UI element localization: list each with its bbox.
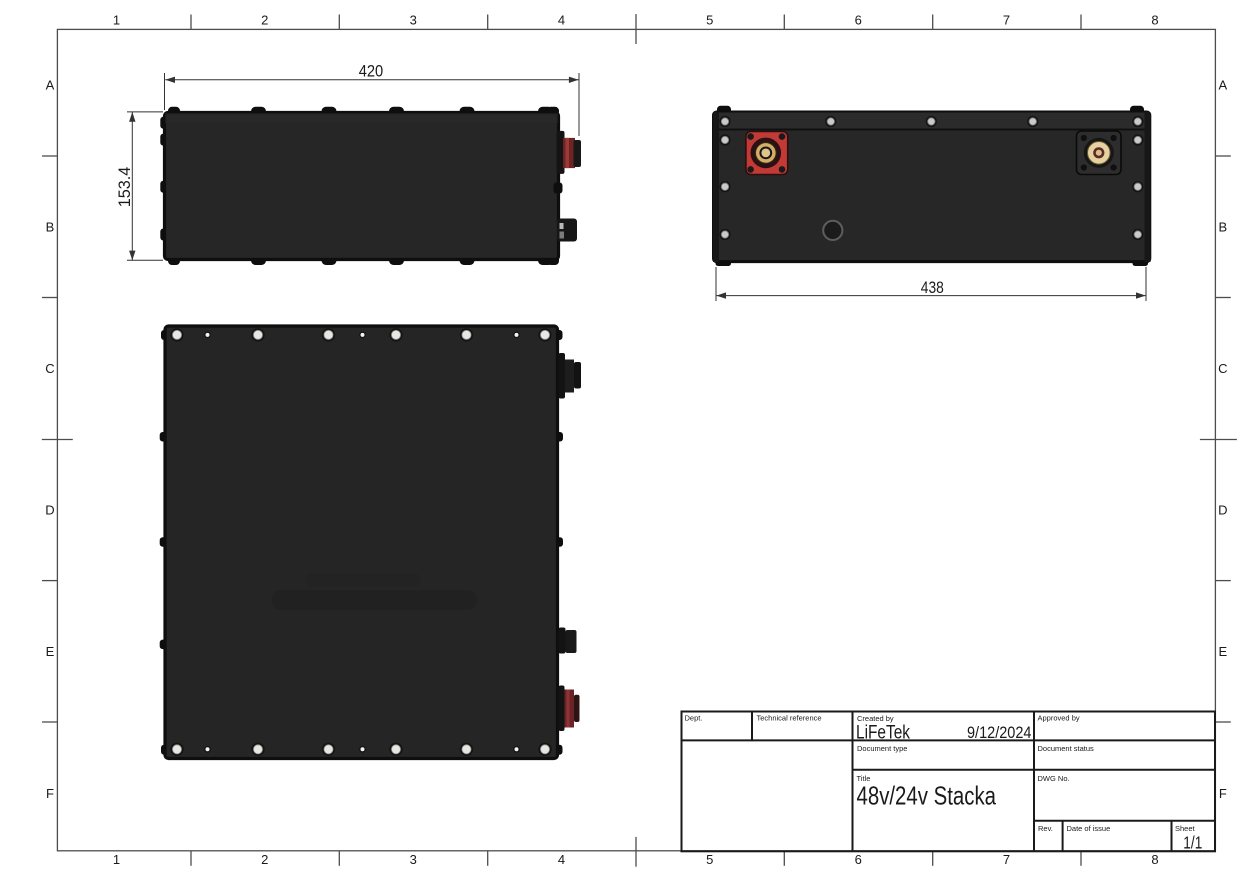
svg-text:1/1: 1/1 [1183,833,1202,853]
svg-text:8: 8 [1151,13,1158,28]
svg-text:7: 7 [1003,13,1010,28]
svg-text:6: 6 [855,13,862,28]
svg-text:E: E [1218,644,1227,659]
svg-text:A: A [46,78,55,93]
svg-text:4: 4 [558,13,565,28]
svg-text:B: B [1218,220,1227,235]
svg-text:D: D [1218,503,1227,518]
svg-text:5: 5 [706,852,713,867]
svg-text:D: D [45,503,54,518]
svg-text:2: 2 [261,852,268,867]
svg-text:Dept.: Dept. [685,714,703,723]
svg-text:48v/24v Stacka: 48v/24v Stacka [857,781,997,811]
svg-text:A: A [1218,78,1227,93]
svg-text:7: 7 [1003,852,1010,867]
svg-text:Rev.: Rev. [1038,824,1053,833]
svg-text:6: 6 [855,852,862,867]
svg-text:Document type: Document type [857,744,907,753]
svg-text:Document status: Document status [1038,744,1095,753]
svg-text:F: F [1219,786,1227,801]
svg-text:3: 3 [410,852,417,867]
svg-text:3: 3 [410,13,417,28]
svg-text:Technical reference: Technical reference [757,714,822,723]
svg-text:Date of issue: Date of issue [1067,824,1111,833]
svg-text:8: 8 [1151,852,1158,867]
svg-text:1: 1 [113,852,120,867]
svg-text:LiFeTek: LiFeTek [856,722,910,743]
svg-text:420: 420 [359,62,384,80]
svg-text:DWG No.: DWG No. [1038,774,1070,783]
svg-text:2: 2 [261,13,268,28]
svg-text:438: 438 [921,279,944,297]
svg-text:B: B [46,220,55,235]
svg-text:C: C [45,361,54,376]
svg-text:9/12/2024: 9/12/2024 [967,723,1032,742]
svg-text:C: C [1218,361,1227,376]
svg-text:Approved by: Approved by [1038,714,1080,723]
svg-text:5: 5 [706,13,713,28]
svg-text:1: 1 [113,13,120,28]
svg-text:F: F [46,786,54,801]
svg-text:E: E [46,644,55,659]
svg-text:4: 4 [558,852,565,867]
svg-text:153.4: 153.4 [116,167,134,208]
